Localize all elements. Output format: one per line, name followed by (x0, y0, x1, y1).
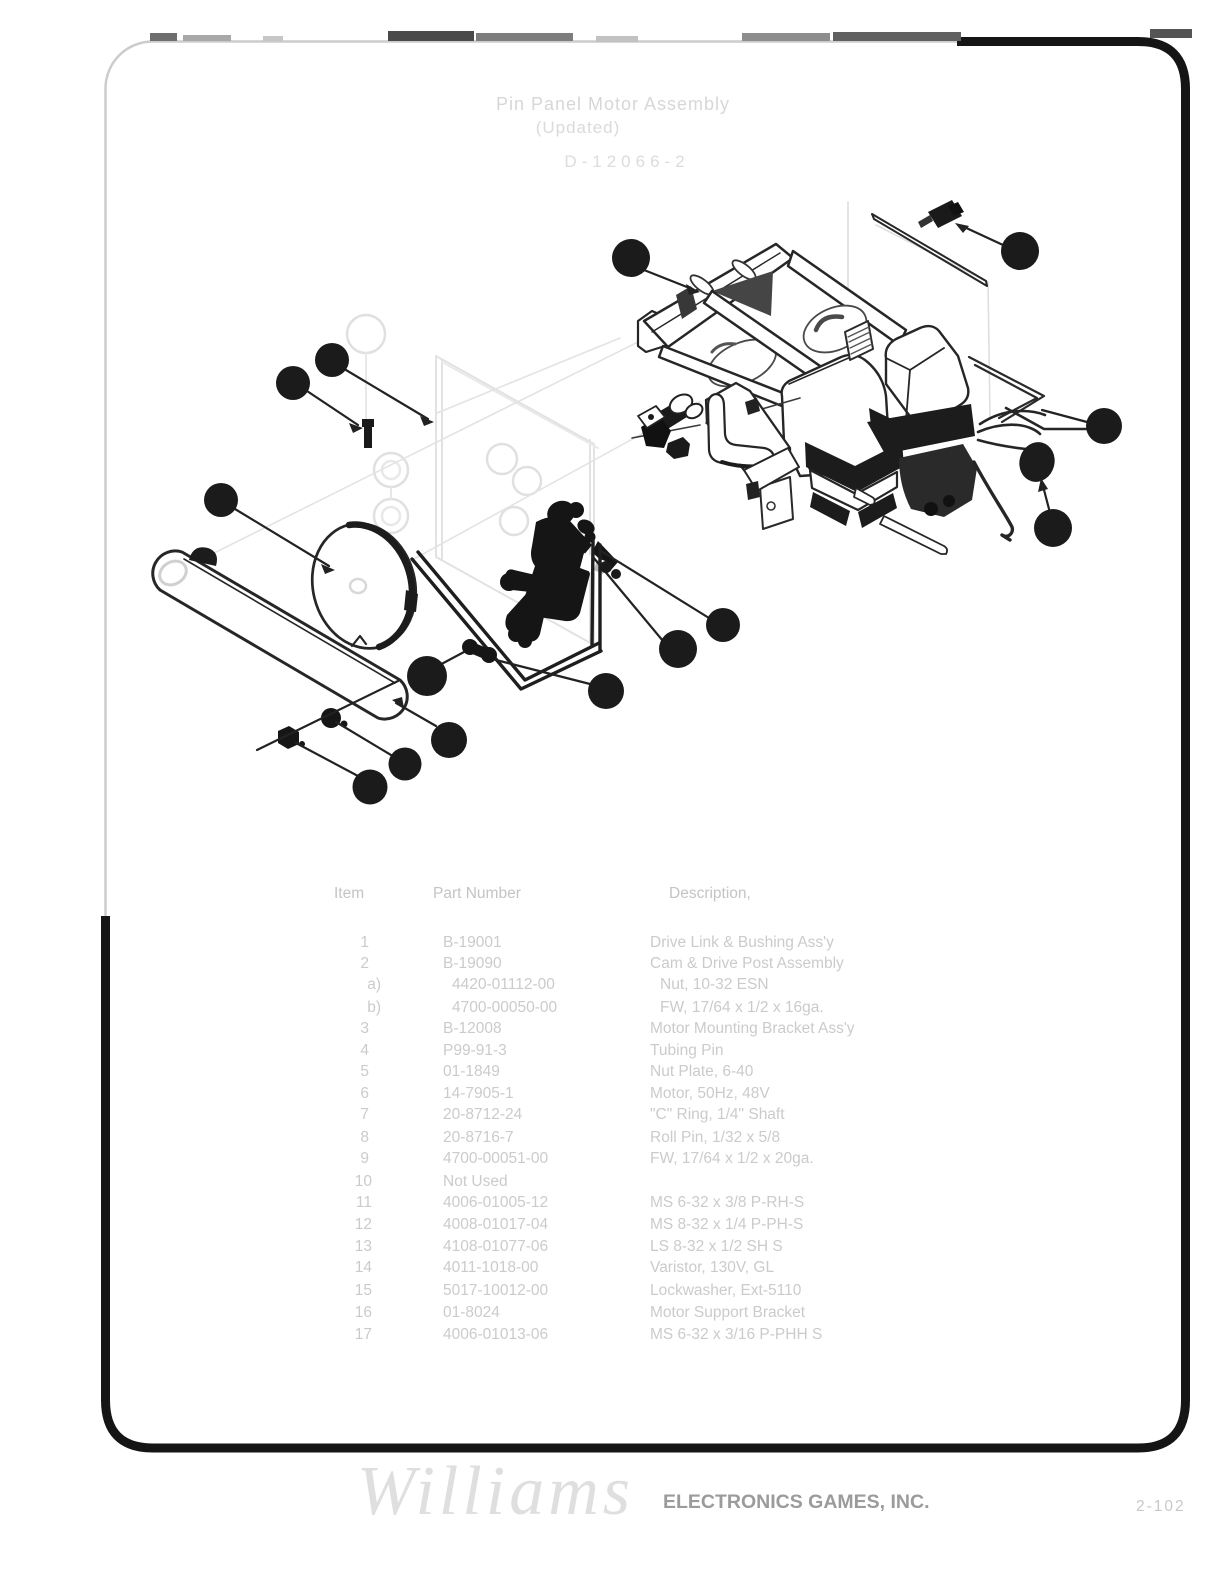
svg-text:MS 6-32 x 3/8 P-RH-S: MS 6-32 x 3/8 P-RH-S (650, 1194, 804, 1211)
svg-text:9: 9 (360, 1150, 369, 1167)
svg-text:4008-01017-04: 4008-01017-04 (443, 1216, 549, 1233)
svg-text:5017-10012-00: 5017-10012-00 (443, 1282, 549, 1299)
svg-text:4006-01005-12: 4006-01005-12 (443, 1194, 548, 1211)
svg-text:12: 12 (355, 1216, 372, 1233)
svg-text:MS 8-32 x 1/4 P-PH-S: MS 8-32 x 1/4 P-PH-S (650, 1216, 803, 1233)
svg-text:2: 2 (360, 955, 369, 972)
svg-text:LS 8-32 x 1/2 SH S: LS 8-32 x 1/2 SH S (650, 1238, 783, 1255)
svg-text:16: 16 (355, 1304, 372, 1321)
svg-text:8: 8 (360, 1129, 369, 1146)
svg-text:Part Number: Part Number (433, 885, 521, 902)
svg-text:Motor Support Bracket: Motor Support Bracket (650, 1304, 806, 1321)
svg-text:Varistor, 130V, GL: Varistor, 130V, GL (650, 1259, 774, 1276)
svg-text:Nut Plate, 6-40: Nut Plate, 6-40 (650, 1063, 754, 1080)
svg-text:13: 13 (355, 1238, 372, 1255)
svg-text:4108-01077-06: 4108-01077-06 (443, 1238, 548, 1255)
svg-text:FW, 17/64 x 1/2 x 20ga.: FW, 17/64 x 1/2 x 20ga. (650, 1150, 814, 1167)
svg-text:14: 14 (355, 1259, 373, 1276)
svg-text:20-8712-24: 20-8712-24 (443, 1106, 523, 1123)
svg-text:Item: Item (334, 885, 364, 902)
svg-text:Nut, 10-32 ESN: Nut, 10-32 ESN (660, 976, 769, 993)
svg-text:2-102: 2-102 (1136, 1498, 1186, 1515)
svg-text:Tubing Pin: Tubing Pin (650, 1042, 724, 1059)
svg-text:D-12066-2: D-12066-2 (564, 152, 689, 171)
svg-text:17: 17 (355, 1326, 372, 1343)
svg-text:4420-01112-00: 4420-01112-00 (452, 976, 555, 993)
svg-text:(Updated): (Updated) (536, 118, 621, 137)
svg-text:5: 5 (360, 1063, 369, 1080)
svg-text:4011-1018-00: 4011-1018-00 (443, 1259, 539, 1276)
svg-text:Pin Panel Motor Assembly: Pin Panel Motor Assembly (496, 94, 730, 114)
svg-text:15: 15 (355, 1282, 372, 1299)
svg-text:Lockwasher, Ext-5110: Lockwasher, Ext-5110 (650, 1282, 802, 1299)
svg-text:B-19090: B-19090 (443, 955, 502, 972)
svg-text:Motor, 50Hz, 48V: Motor, 50Hz, 48V (650, 1085, 770, 1102)
svg-text:Williams: Williams (357, 1453, 634, 1530)
svg-text:Not Used: Not Used (443, 1173, 508, 1190)
svg-text:ELECTRONICS GAMES, INC.: ELECTRONICS GAMES, INC. (663, 1491, 930, 1513)
svg-text:Drive Link & Bushing Ass'y: Drive Link & Bushing Ass'y (650, 934, 834, 951)
svg-text:1: 1 (360, 934, 369, 951)
svg-text:11: 11 (356, 1194, 372, 1211)
svg-text:P99-91-3: P99-91-3 (443, 1042, 507, 1059)
svg-text:B-19001: B-19001 (443, 934, 502, 951)
svg-text:Cam & Drive Post Assembly: Cam & Drive Post Assembly (650, 955, 844, 972)
svg-text:Description,: Description, (669, 885, 751, 902)
svg-text:4700-00050-00: 4700-00050-00 (452, 999, 558, 1016)
svg-text:14-7905-1: 14-7905-1 (443, 1085, 514, 1102)
svg-text:4700-00051-00: 4700-00051-00 (443, 1150, 549, 1167)
svg-text:7: 7 (360, 1106, 369, 1123)
svg-text:MS 6-32 x 3/16 P-PHH S: MS 6-32 x 3/16 P-PHH S (650, 1326, 822, 1343)
svg-text:20-8716-7: 20-8716-7 (443, 1129, 514, 1146)
svg-text:"C" Ring, 1/4" Shaft: "C" Ring, 1/4" Shaft (650, 1106, 785, 1123)
svg-text:01-8024: 01-8024 (443, 1304, 500, 1321)
svg-text:3: 3 (360, 1020, 369, 1037)
svg-text:Motor Mounting Bracket Ass'y: Motor Mounting Bracket Ass'y (650, 1020, 855, 1037)
svg-text:6: 6 (360, 1085, 369, 1102)
svg-text:4: 4 (360, 1042, 369, 1059)
svg-text:01-1849: 01-1849 (443, 1063, 500, 1080)
svg-text:B-12008: B-12008 (443, 1020, 502, 1037)
svg-text:10: 10 (355, 1173, 373, 1190)
svg-text:b): b) (367, 999, 381, 1016)
svg-text:a): a) (367, 976, 381, 993)
svg-text:4006-01013-06: 4006-01013-06 (443, 1326, 548, 1343)
svg-text:Roll Pin, 1/32 x 5/8: Roll Pin, 1/32 x 5/8 (650, 1129, 780, 1146)
svg-text:FW, 17/64 x 1/2 x 16ga.: FW, 17/64 x 1/2 x 16ga. (660, 999, 824, 1016)
